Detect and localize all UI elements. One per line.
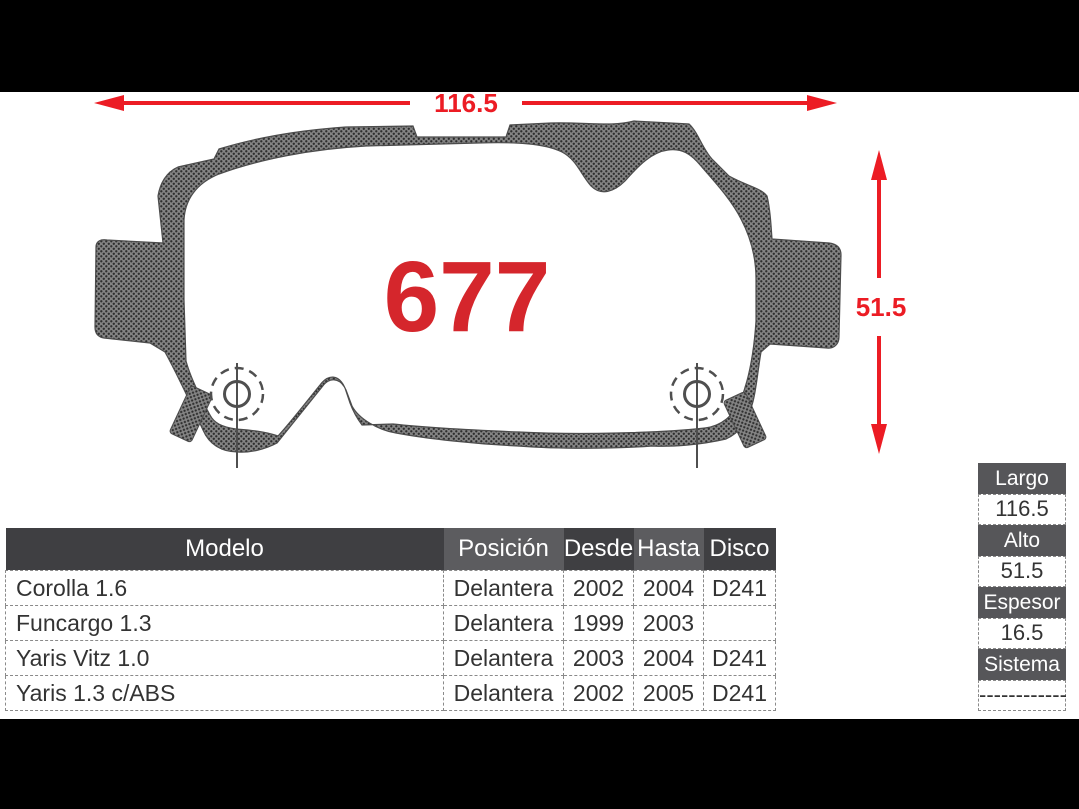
cell-position: Delantera: [444, 676, 564, 711]
cell-model: Corolla 1.6: [6, 571, 444, 606]
spec-value-espesor: 16.5: [978, 618, 1066, 649]
cell-to: 2004: [634, 641, 704, 676]
height-dimension-label: 51.5: [856, 292, 907, 322]
cell-disc: D241: [704, 641, 776, 676]
specs-table: Largo 116.5 Alto 51.5 Espesor 16.5 Siste…: [978, 463, 1066, 711]
spec-value-largo: 116.5: [978, 494, 1066, 525]
table-row: Yaris Vitz 1.0 Delantera 2003 2004 D241: [6, 641, 776, 676]
cell-disc: D241: [704, 676, 776, 711]
cell-from: 2003: [564, 641, 634, 676]
spec-value-sistema: ------------: [978, 680, 1066, 711]
cell-to: 2003: [634, 606, 704, 641]
spec-value-alto: 51.5: [978, 556, 1066, 587]
cell-position: Delantera: [444, 571, 564, 606]
width-dimension-arrow: 116.5: [94, 88, 837, 118]
cell-from: 1999: [564, 606, 634, 641]
cell-to: 2005: [634, 676, 704, 711]
part-number: 677: [384, 241, 551, 353]
col-header-posicion: Posición: [444, 528, 564, 571]
cell-model: Yaris Vitz 1.0: [6, 641, 444, 676]
left-hole-crosshair: [211, 363, 263, 468]
table-row: Funcargo 1.3 Delantera 1999 2003: [6, 606, 776, 641]
spec-label-sistema: Sistema: [978, 649, 1066, 680]
col-header-modelo: Modelo: [6, 528, 444, 571]
col-header-desde: Desde: [564, 528, 634, 571]
table-row: Yaris 1.3 c/ABS Delantera 2002 2005 D241: [6, 676, 776, 711]
spec-label-largo: Largo: [978, 463, 1066, 494]
col-header-hasta: Hasta: [634, 528, 704, 571]
height-dimension-arrow: 51.5: [856, 150, 907, 454]
arrow-head-right: [807, 95, 837, 111]
applications-table: Modelo Posición Desde Hasta Disco Coroll…: [5, 528, 776, 711]
arrow-head-top: [871, 150, 887, 180]
col-header-disco: Disco: [704, 528, 776, 571]
spec-label-alto: Alto: [978, 525, 1066, 556]
applications-header-row: Modelo Posición Desde Hasta Disco: [6, 528, 776, 571]
cell-position: Delantera: [444, 641, 564, 676]
arrow-head-left: [94, 95, 124, 111]
cell-from: 2002: [564, 676, 634, 711]
datasheet-page: 116.5 51.5 677 Modelo Posición Desde Has…: [0, 0, 1079, 809]
spec-label-espesor: Espesor: [978, 587, 1066, 618]
cell-model: Yaris 1.3 c/ABS: [6, 676, 444, 711]
cell-disc: [704, 606, 776, 641]
cell-disc: D241: [704, 571, 776, 606]
cell-from: 2002: [564, 571, 634, 606]
cell-to: 2004: [634, 571, 704, 606]
cell-position: Delantera: [444, 606, 564, 641]
right-hole-crosshair: [671, 363, 723, 468]
arrow-head-bottom: [871, 424, 887, 454]
width-dimension-label: 116.5: [434, 88, 498, 118]
table-row: Corolla 1.6 Delantera 2002 2004 D241: [6, 571, 776, 606]
cell-model: Funcargo 1.3: [6, 606, 444, 641]
